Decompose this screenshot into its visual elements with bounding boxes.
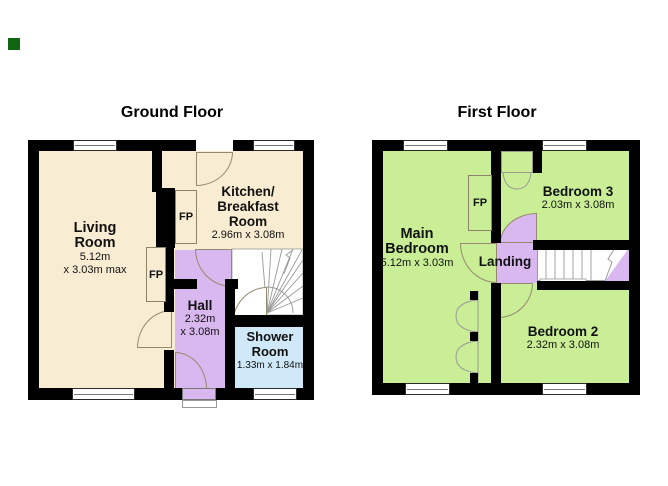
ground-floor-title: Ground Floor (121, 104, 223, 122)
front-door-opening (196, 140, 233, 151)
shower-room-label: Shower Room 1.33m x 1.84m (237, 329, 303, 372)
fireplace-box-living: FP (146, 247, 166, 302)
window (542, 383, 587, 395)
window (253, 140, 295, 151)
window (403, 140, 448, 151)
window (542, 140, 587, 151)
floorplan-page: { "palette": { "room_cream": "#f8ecd2", … (0, 0, 668, 486)
wall (225, 279, 235, 315)
ground-floor-plan: FP FP Living Room 5.12m x 3.03m max Kitc… (28, 140, 314, 408)
first-floor-plan: FP Main Bedroom 5.12m x 3.03m Bedroom 3 … (372, 140, 640, 395)
wall (164, 350, 174, 388)
fireplace-label: FP (149, 269, 163, 281)
window (405, 383, 450, 395)
wall (28, 140, 39, 400)
hall-label: Hall 2.32m x 3.08m (180, 298, 219, 339)
wall (152, 151, 162, 192)
bedroom-2-label: Bedroom 2 2.32m x 3.08m (527, 324, 600, 352)
wall (491, 283, 501, 383)
closet-stub (470, 291, 478, 300)
window (253, 388, 297, 400)
wall (629, 140, 640, 395)
wall (533, 151, 542, 173)
wall (174, 279, 197, 289)
wall (537, 281, 629, 290)
wall (491, 151, 501, 243)
fireplace-box-bedroom: FP (468, 175, 492, 231)
first-floor-title: First Floor (457, 104, 536, 122)
fireplace-label: FP (179, 211, 193, 223)
living-room-label: Living Room 5.12m x 3.03m max (64, 221, 127, 277)
rear-step (182, 400, 217, 408)
wall (533, 240, 629, 250)
wall (303, 140, 314, 400)
rear-door-opening (182, 388, 216, 400)
closet-stub (470, 332, 478, 341)
wall (225, 315, 303, 327)
main-bedroom-label: Main Bedroom 5.12m x 3.03m (381, 227, 454, 270)
landing-label: Landing (479, 254, 532, 269)
bedroom-3-label: Bedroom 3 2.03m x 3.08m (542, 184, 615, 212)
kitchen-label: Kitchen/ Breakfast Room 2.96m x 3.08m (212, 184, 285, 242)
wall (225, 315, 235, 388)
closet-stub (470, 373, 478, 383)
chimney-breast (156, 188, 175, 248)
window (73, 140, 117, 151)
fireplace-label: FP (473, 197, 487, 209)
window (72, 388, 135, 400)
fireplace-box-kitchen: FP (175, 190, 197, 244)
green-marker (8, 38, 20, 50)
